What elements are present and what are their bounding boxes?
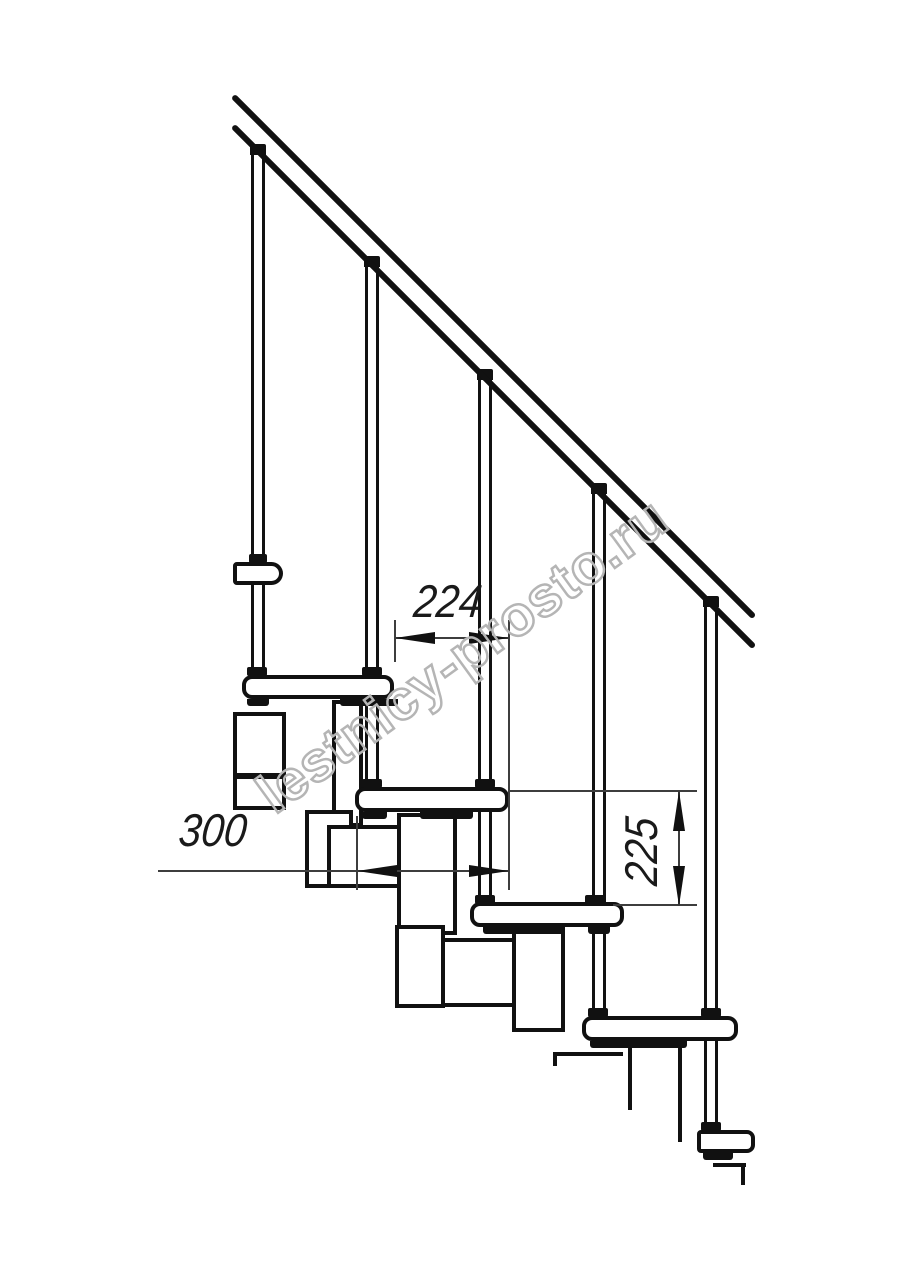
baluster-4-collar <box>585 895 605 904</box>
staircase-technical-drawing: 224 300 225 lestnicy-prosto.ru <box>0 0 914 1280</box>
tread-4 <box>582 1016 738 1041</box>
tread-5-foot <box>703 1153 733 1160</box>
tread-5-partial <box>697 1130 755 1153</box>
baluster-5-tread-connector <box>701 1122 721 1131</box>
support-square-module-2 <box>327 825 402 888</box>
tread-2-foot <box>362 812 387 819</box>
dim-225-label: 225 <box>614 814 668 887</box>
baluster-4-tread-connector <box>588 1008 608 1017</box>
support-neck-3 <box>512 928 565 1032</box>
dim-300-line <box>158 870 510 872</box>
baluster-3-collar <box>475 779 495 788</box>
tread-2-foot <box>420 812 473 819</box>
tread-3-foot <box>588 927 610 934</box>
support-module-box-3 <box>395 925 445 1008</box>
handrail-top-line <box>231 94 756 619</box>
tread-1-foot <box>247 699 269 706</box>
support-neck-5-partial-line <box>741 1163 745 1185</box>
tread-3-foot <box>483 927 565 934</box>
dim-225-extension-top <box>510 790 697 792</box>
dim-300-extension-left <box>356 816 358 890</box>
dim-300-arrow-right <box>469 865 509 877</box>
baluster-3-tread-connector <box>475 895 495 904</box>
baluster-5 <box>704 607 718 1130</box>
dim-225-arrow-down <box>673 866 685 906</box>
dim-225-arrow-up <box>673 791 685 831</box>
baluster-1 <box>251 155 265 675</box>
tread-4-foot <box>590 1041 687 1048</box>
dim-300-label: 300 <box>176 803 249 857</box>
support-module-4-partial-line <box>553 1052 557 1066</box>
support-square-module-3 <box>441 938 518 1007</box>
upper-tread-edge <box>233 562 283 585</box>
baluster-2-tread-connector <box>362 779 382 788</box>
tread-2 <box>355 787 509 812</box>
handrail-bottom-line <box>231 124 756 649</box>
baluster-1-collar <box>249 554 267 563</box>
baluster-1-tread-connector <box>247 667 267 676</box>
baluster-5-collar <box>701 1008 721 1017</box>
support-neck-2 <box>397 813 457 935</box>
support-module-4-partial-line <box>553 1052 623 1056</box>
support-neck-4-partial-line <box>628 1047 632 1110</box>
dim-300-arrow-left <box>357 865 397 877</box>
tread-3 <box>470 902 624 927</box>
support-neck-4-partial-line <box>678 1042 682 1142</box>
watermark-text: lestnicy-prosto.ru <box>244 484 679 825</box>
